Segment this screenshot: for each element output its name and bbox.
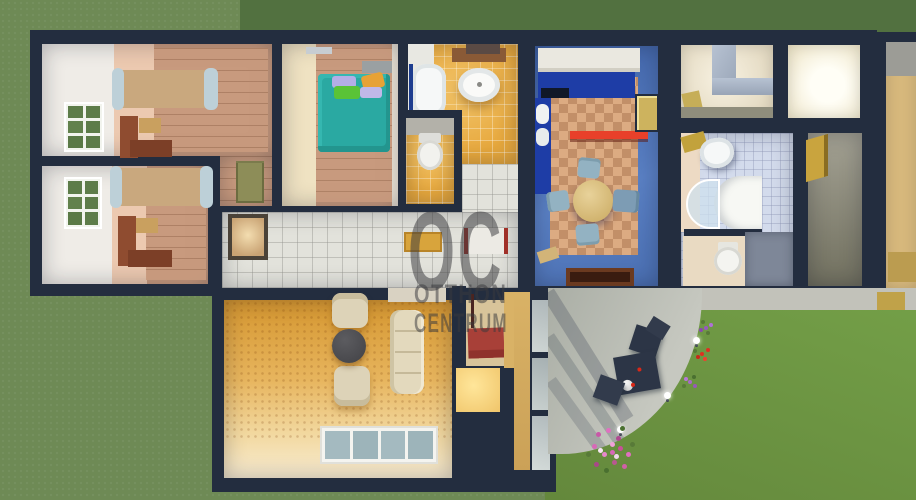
kitchen-window	[566, 268, 634, 286]
floorplan-render: OC OTTHON CENTRUM	[0, 0, 916, 500]
sofa	[390, 310, 424, 394]
window-pane	[85, 212, 99, 225]
bedroom-1-desk-return	[130, 140, 172, 157]
utility-counter	[681, 107, 773, 118]
window-pane	[68, 136, 83, 148]
doormat-gold	[404, 232, 442, 252]
kitchen-upper-cabinets	[538, 48, 640, 72]
path-gold-shelf	[877, 292, 905, 310]
pedestal-sink-round	[458, 68, 500, 102]
utility-wall-horizontal	[712, 78, 773, 95]
corner-shower-door	[714, 176, 762, 230]
floor-lamp	[471, 294, 474, 328]
window-pane	[86, 121, 101, 133]
living-doorway	[388, 288, 446, 302]
bedroom-1-desk-shelf	[139, 118, 161, 133]
conservatory-tan-wall	[514, 292, 530, 470]
wardrobe	[236, 161, 264, 203]
sofa-cushion-line	[395, 351, 421, 353]
dining-chair	[612, 189, 639, 213]
wc-1-toilet	[417, 140, 443, 170]
window-pane	[68, 197, 82, 210]
bedroom-1-bed	[116, 70, 212, 108]
window-pane	[381, 431, 406, 459]
sink-drain	[477, 82, 482, 87]
patio-table-red-dot	[631, 383, 636, 388]
window-pane	[68, 212, 82, 225]
bed-bolster	[204, 68, 218, 110]
window-pane	[85, 197, 99, 210]
window-pane	[68, 106, 83, 118]
flower-bush-pink	[610, 450, 615, 455]
garden-lamp	[617, 426, 624, 433]
bedroom-2-desk-shelf	[136, 218, 158, 233]
window-pane	[325, 431, 350, 459]
pillow-lavender-2	[360, 87, 382, 98]
window-pane	[68, 181, 82, 194]
bed-bolster	[200, 166, 213, 208]
dining-chair	[577, 157, 601, 179]
dining-table	[573, 180, 613, 222]
bedroom-2-desk-return	[128, 250, 172, 267]
living-window	[322, 428, 436, 462]
kitchen-shelf-red	[570, 131, 648, 139]
bed-bolster	[112, 68, 124, 110]
grass-dark-top-band	[240, 0, 916, 32]
window-pane	[68, 121, 83, 133]
flower-cluster-red	[700, 352, 704, 356]
red-mat	[467, 327, 504, 358]
nook-wall	[452, 286, 466, 378]
bedroom-2-window	[64, 177, 102, 229]
dining-chair	[546, 190, 571, 213]
window-pane	[408, 431, 433, 459]
garden-lamp	[693, 337, 700, 344]
armchair	[332, 293, 368, 328]
kitchen-sink	[536, 104, 549, 124]
hallway-alcove	[228, 214, 268, 260]
bright-room	[788, 45, 860, 118]
far-right-room-shelf	[888, 252, 916, 282]
bed-bolster	[110, 166, 122, 208]
flower-cluster-purple	[688, 380, 692, 384]
sofa-cushion-line	[395, 372, 421, 374]
bathtub-blue-trim	[409, 64, 413, 116]
nook-bright-floor	[456, 368, 500, 412]
patio-table-red-dot	[637, 367, 642, 372]
kitchen-shelf-gold	[637, 96, 657, 130]
bedroom-2-bed	[114, 168, 208, 206]
bathroom-2-floor-grey	[745, 232, 793, 286]
entry-gold-door	[806, 134, 828, 182]
flower-cluster-purple	[704, 326, 708, 330]
kitchen-sink-2	[536, 128, 549, 146]
doormat-white	[464, 228, 508, 254]
window-pane	[86, 106, 101, 118]
bathtub	[412, 64, 446, 116]
master-double-bed	[318, 74, 390, 152]
pillow-green	[334, 86, 360, 99]
armchair	[334, 366, 370, 406]
toilet	[714, 247, 742, 275]
alcove-glow	[232, 218, 264, 256]
garden-lamp	[664, 392, 671, 399]
bathroom-1-mirror	[466, 44, 500, 54]
dining-chair	[575, 223, 600, 246]
kitchen-cooktop	[541, 88, 569, 98]
window-pane	[85, 181, 99, 194]
sofa-cushion-line	[395, 330, 421, 332]
bedroom-1-window	[64, 102, 104, 152]
window-pane	[353, 431, 378, 459]
master-ceiling-lamp	[306, 47, 332, 54]
window-pane	[86, 136, 101, 148]
bath-vestibule	[462, 164, 518, 214]
coffee-table-round	[332, 329, 366, 363]
master-shelf	[362, 61, 392, 73]
far-right-room-grey-top	[886, 42, 916, 76]
